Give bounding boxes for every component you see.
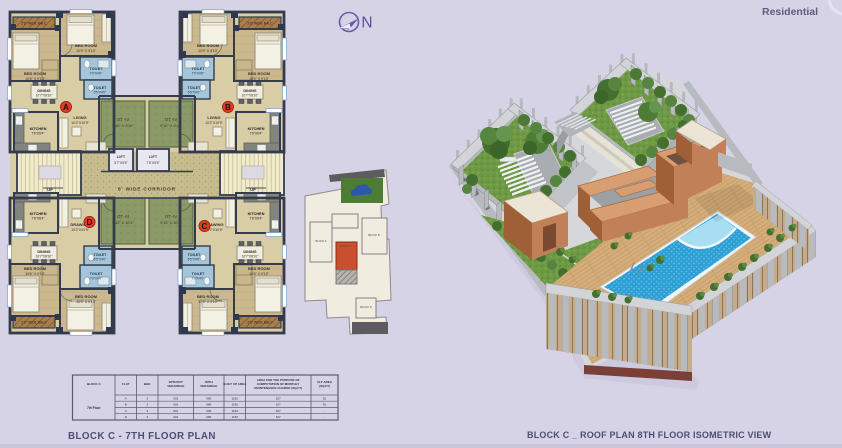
svg-text:986: 986: [206, 396, 211, 400]
svg-text:OT -III: OT -III: [117, 214, 129, 219]
svg-text:BED ROOM: BED ROOM: [75, 43, 98, 48]
svg-text:10'2"X10'9": 10'2"X10'9": [71, 228, 90, 232]
svg-text:OT -IV: OT -IV: [165, 117, 177, 122]
svg-text:7'6"X6'4": 7'6"X6'4": [249, 217, 263, 221]
svg-text:DINING: DINING: [243, 250, 256, 254]
svg-text:BLOCK D: BLOCK D: [360, 305, 372, 309]
svg-text:1150: 1150: [232, 396, 239, 400]
svg-text:1150: 1150: [232, 403, 239, 407]
svg-text:UP: UP: [250, 187, 256, 192]
svg-text:KITCHEN: KITCHEN: [30, 127, 47, 131]
svg-text:901: 901: [173, 415, 178, 419]
svg-text:10'9" X 9'10": 10'9" X 9'10": [76, 49, 97, 53]
svg-text:MAINTENANCE CHARGE (SQ.FT): MAINTENANCE CHARGE (SQ.FT): [254, 386, 302, 390]
svg-text:BED ROOM: BED ROOM: [248, 71, 271, 76]
svg-text:B: B: [225, 103, 231, 112]
svg-text:D: D: [87, 218, 93, 227]
svg-text:8' WIDE CORRIDOR: 8' WIDE CORRIDOR: [118, 187, 176, 193]
svg-text:BED ROOM: BED ROOM: [248, 266, 271, 271]
svg-text:10'2"X10'9": 10'2"X10'9": [205, 121, 224, 125]
svg-text:901: 901: [173, 409, 178, 413]
svg-text:627: 627: [276, 403, 281, 407]
svg-text:10'7"X8'10": 10'7"X8'10": [36, 255, 54, 259]
svg-text:-: -: [324, 409, 325, 413]
svg-text:986: 986: [206, 409, 211, 413]
svg-text:627: 627: [276, 409, 281, 413]
svg-text:7th Floor: 7th Floor: [87, 406, 101, 410]
svg-text:901: 901: [173, 396, 178, 400]
svg-text:BED ROOM: BED ROOM: [197, 294, 220, 299]
svg-text:A: A: [63, 103, 69, 112]
svg-text:OT -IV: OT -IV: [165, 214, 177, 219]
svg-text:C: C: [202, 222, 208, 231]
svg-text:10'9" X 9'10": 10'9" X 9'10": [198, 300, 219, 304]
svg-text:7'0"X4'0": 7'0"X4'0": [90, 71, 103, 75]
svg-text:7'6"X5'5": 7'6"X5'5": [146, 161, 160, 165]
svg-text:9'10" X 10'4": 9'10" X 10'4": [112, 221, 134, 225]
svg-text:BLOCK C: BLOCK C: [87, 382, 101, 386]
svg-text:7'6"X6'4": 7'6"X6'4": [31, 217, 45, 221]
svg-text:BUILT UP AREA: BUILT UP AREA: [223, 382, 247, 386]
svg-text:BLOCK A: BLOCK A: [315, 239, 326, 243]
svg-text:TOILET: TOILET: [94, 86, 108, 90]
svg-text:DINING: DINING: [37, 89, 50, 93]
svg-text:BHK: BHK: [144, 382, 151, 386]
svg-text:5'5"X4'0": 5'5"X4'0": [188, 257, 201, 261]
svg-text:N: N: [361, 15, 372, 32]
svg-text:10'2"X10'9": 10'2"X10'9": [71, 121, 90, 125]
svg-text:DINING: DINING: [37, 250, 50, 254]
svg-text:KITCHEN: KITCHEN: [248, 127, 265, 131]
svg-text:LIFT: LIFT: [117, 154, 126, 159]
svg-text:627: 627: [276, 396, 281, 400]
svg-text:901: 901: [173, 403, 178, 407]
svg-text:5'7"X5'5": 5'7"X5'5": [114, 161, 128, 165]
svg-text:10'6" X 9'10": 10'6" X 9'10": [25, 272, 46, 276]
svg-text:52: 52: [323, 403, 327, 407]
svg-text:2'6" WIDE BALC: 2'6" WIDE BALC: [21, 321, 47, 325]
svg-text:1150: 1150: [232, 409, 239, 413]
svg-text:5'5"X4'0": 5'5"X4'0": [188, 90, 201, 94]
svg-text:A: A: [125, 396, 127, 400]
svg-text:TOILET: TOILET: [188, 86, 202, 90]
svg-text:9'10" X 9'10": 9'10" X 9'10": [112, 124, 134, 128]
svg-text:2'6" WIDE BALC: 2'6" WIDE BALC: [247, 22, 273, 26]
svg-text:KITCHEN: KITCHEN: [248, 212, 265, 216]
svg-text:LIVING: LIVING: [207, 115, 220, 120]
svg-text:7'0"X4'0": 7'0"X4'0": [90, 276, 103, 280]
svg-text:Residential: Residential: [762, 6, 818, 18]
svg-text:7'0"X4'0": 7'0"X4'0": [192, 71, 205, 75]
svg-text:BED ROOM: BED ROOM: [197, 43, 220, 48]
svg-text:UP: UP: [47, 187, 53, 192]
svg-text:52: 52: [323, 396, 327, 400]
svg-text:10'7"X8'10": 10'7"X8'10": [242, 255, 260, 259]
svg-text:5'5"X4'0": 5'5"X4'0": [94, 90, 107, 94]
svg-text:-: -: [324, 415, 325, 419]
svg-text:TOILET: TOILET: [192, 272, 206, 276]
svg-text:LIVING: LIVING: [73, 115, 86, 120]
svg-text:(SQ.FT): (SQ.FT): [319, 384, 330, 388]
svg-text:VERANDAH: VERANDAH: [167, 384, 184, 388]
svg-text:BED ROOM: BED ROOM: [75, 294, 98, 299]
svg-text:627: 627: [276, 415, 281, 419]
svg-text:BLOCK B: BLOCK B: [368, 233, 380, 237]
svg-text:LIFT: LIFT: [149, 154, 158, 159]
svg-text:TOILET: TOILET: [192, 67, 206, 71]
svg-text:VERANDAH: VERANDAH: [200, 384, 217, 388]
svg-text:1150: 1150: [232, 415, 239, 419]
svg-text:BLOCK C _ ROOF PLAN 8TH FLOOR: BLOCK C _ ROOF PLAN 8TH FLOOR ISOMETRIC …: [527, 430, 772, 440]
svg-text:10'7"X8'10": 10'7"X8'10": [242, 94, 260, 98]
svg-text:TOILET: TOILET: [90, 67, 104, 71]
svg-text:986: 986: [206, 415, 211, 419]
svg-text:10'6" X 9'10": 10'6" X 9'10": [249, 272, 270, 276]
svg-text:OT -IV: OT -IV: [117, 117, 129, 122]
svg-text:BLOCK C - 7TH FLOOR PLAN: BLOCK C - 7TH FLOOR PLAN: [68, 431, 216, 442]
svg-text:B: B: [125, 403, 127, 407]
svg-text:7'6"X6'4": 7'6"X6'4": [249, 132, 263, 136]
svg-text:986: 986: [206, 403, 211, 407]
svg-text:7'6"X6'4": 7'6"X6'4": [31, 132, 45, 136]
svg-text:2'6" WIDE BALC: 2'6" WIDE BALC: [247, 321, 273, 325]
svg-text:KITCHEN: KITCHEN: [30, 212, 47, 216]
svg-text:BED ROOM: BED ROOM: [24, 266, 47, 271]
svg-text:DINING: DINING: [243, 89, 256, 93]
svg-text:TOILET: TOILET: [188, 253, 202, 257]
svg-text:2'6" WIDE BALC: 2'6" WIDE BALC: [21, 22, 47, 26]
svg-text:10'9" X 9'10": 10'9" X 9'10": [76, 300, 97, 304]
svg-text:TOILET: TOILET: [94, 253, 108, 257]
svg-text:BLOCK C: BLOCK C: [340, 244, 352, 248]
svg-text:10'7"X8'10": 10'7"X8'10": [36, 94, 54, 98]
svg-text:FLAT: FLAT: [122, 382, 130, 386]
svg-text:5'5"X4'0": 5'5"X4'0": [94, 257, 107, 261]
svg-text:TOILET: TOILET: [90, 272, 104, 276]
svg-text:7'0"X4'0": 7'0"X4'0": [192, 276, 205, 280]
svg-text:10'9" X 9'10": 10'9" X 9'10": [198, 49, 219, 53]
svg-text:BED ROOM: BED ROOM: [24, 71, 47, 76]
